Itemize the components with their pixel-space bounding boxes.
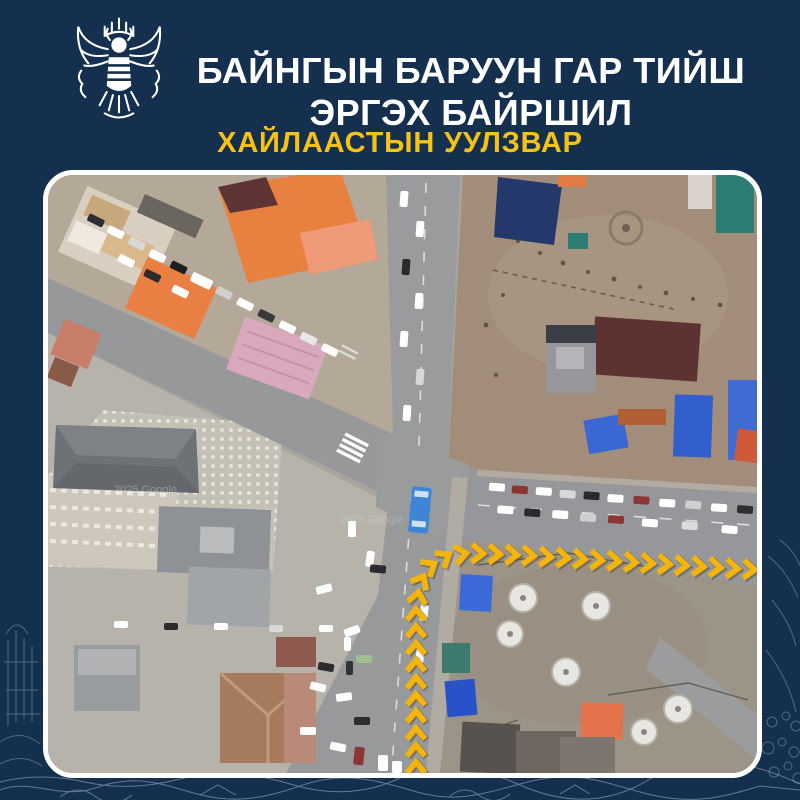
svg-text:2025 Google: 2025 Google <box>114 484 177 496</box>
title-line-1: БАЙНГЫН БАРУУН ГАР ТИЙШ <box>197 50 745 91</box>
intersection-name-subtitle: ХАЙЛААСТЫН УУЛЗВАР <box>0 127 800 160</box>
traffic-police-emblem-icon <box>68 14 170 122</box>
announcement-graphic: { "colors": { "background": "#15304e", "… <box>0 0 800 800</box>
page-title: БАЙНГЫН БАРУУН ГАР ТИЙШ ЭРГЭХ БАЙРШИЛ <box>168 50 774 134</box>
satellite-map-image: 2025 Google 2025 Google <box>48 175 757 773</box>
svg-text:2025 Google: 2025 Google <box>340 514 403 526</box>
satellite-map-panel: 2025 Google 2025 Google <box>43 170 762 778</box>
